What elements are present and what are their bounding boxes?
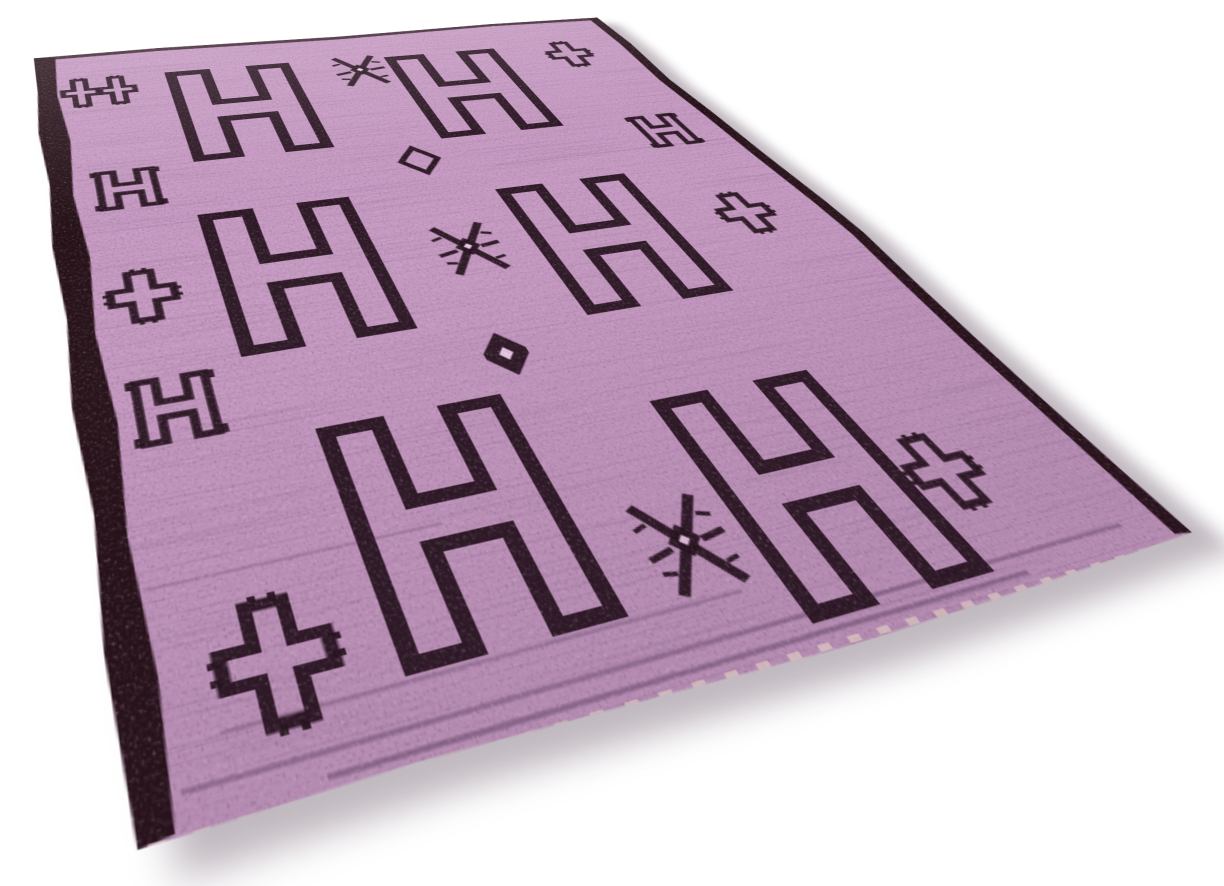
- rug-sheen: [28, 15, 1224, 875]
- rug-photo: [28, 15, 1224, 875]
- rug-svg: [28, 15, 1224, 875]
- photo-background: [0, 0, 1224, 886]
